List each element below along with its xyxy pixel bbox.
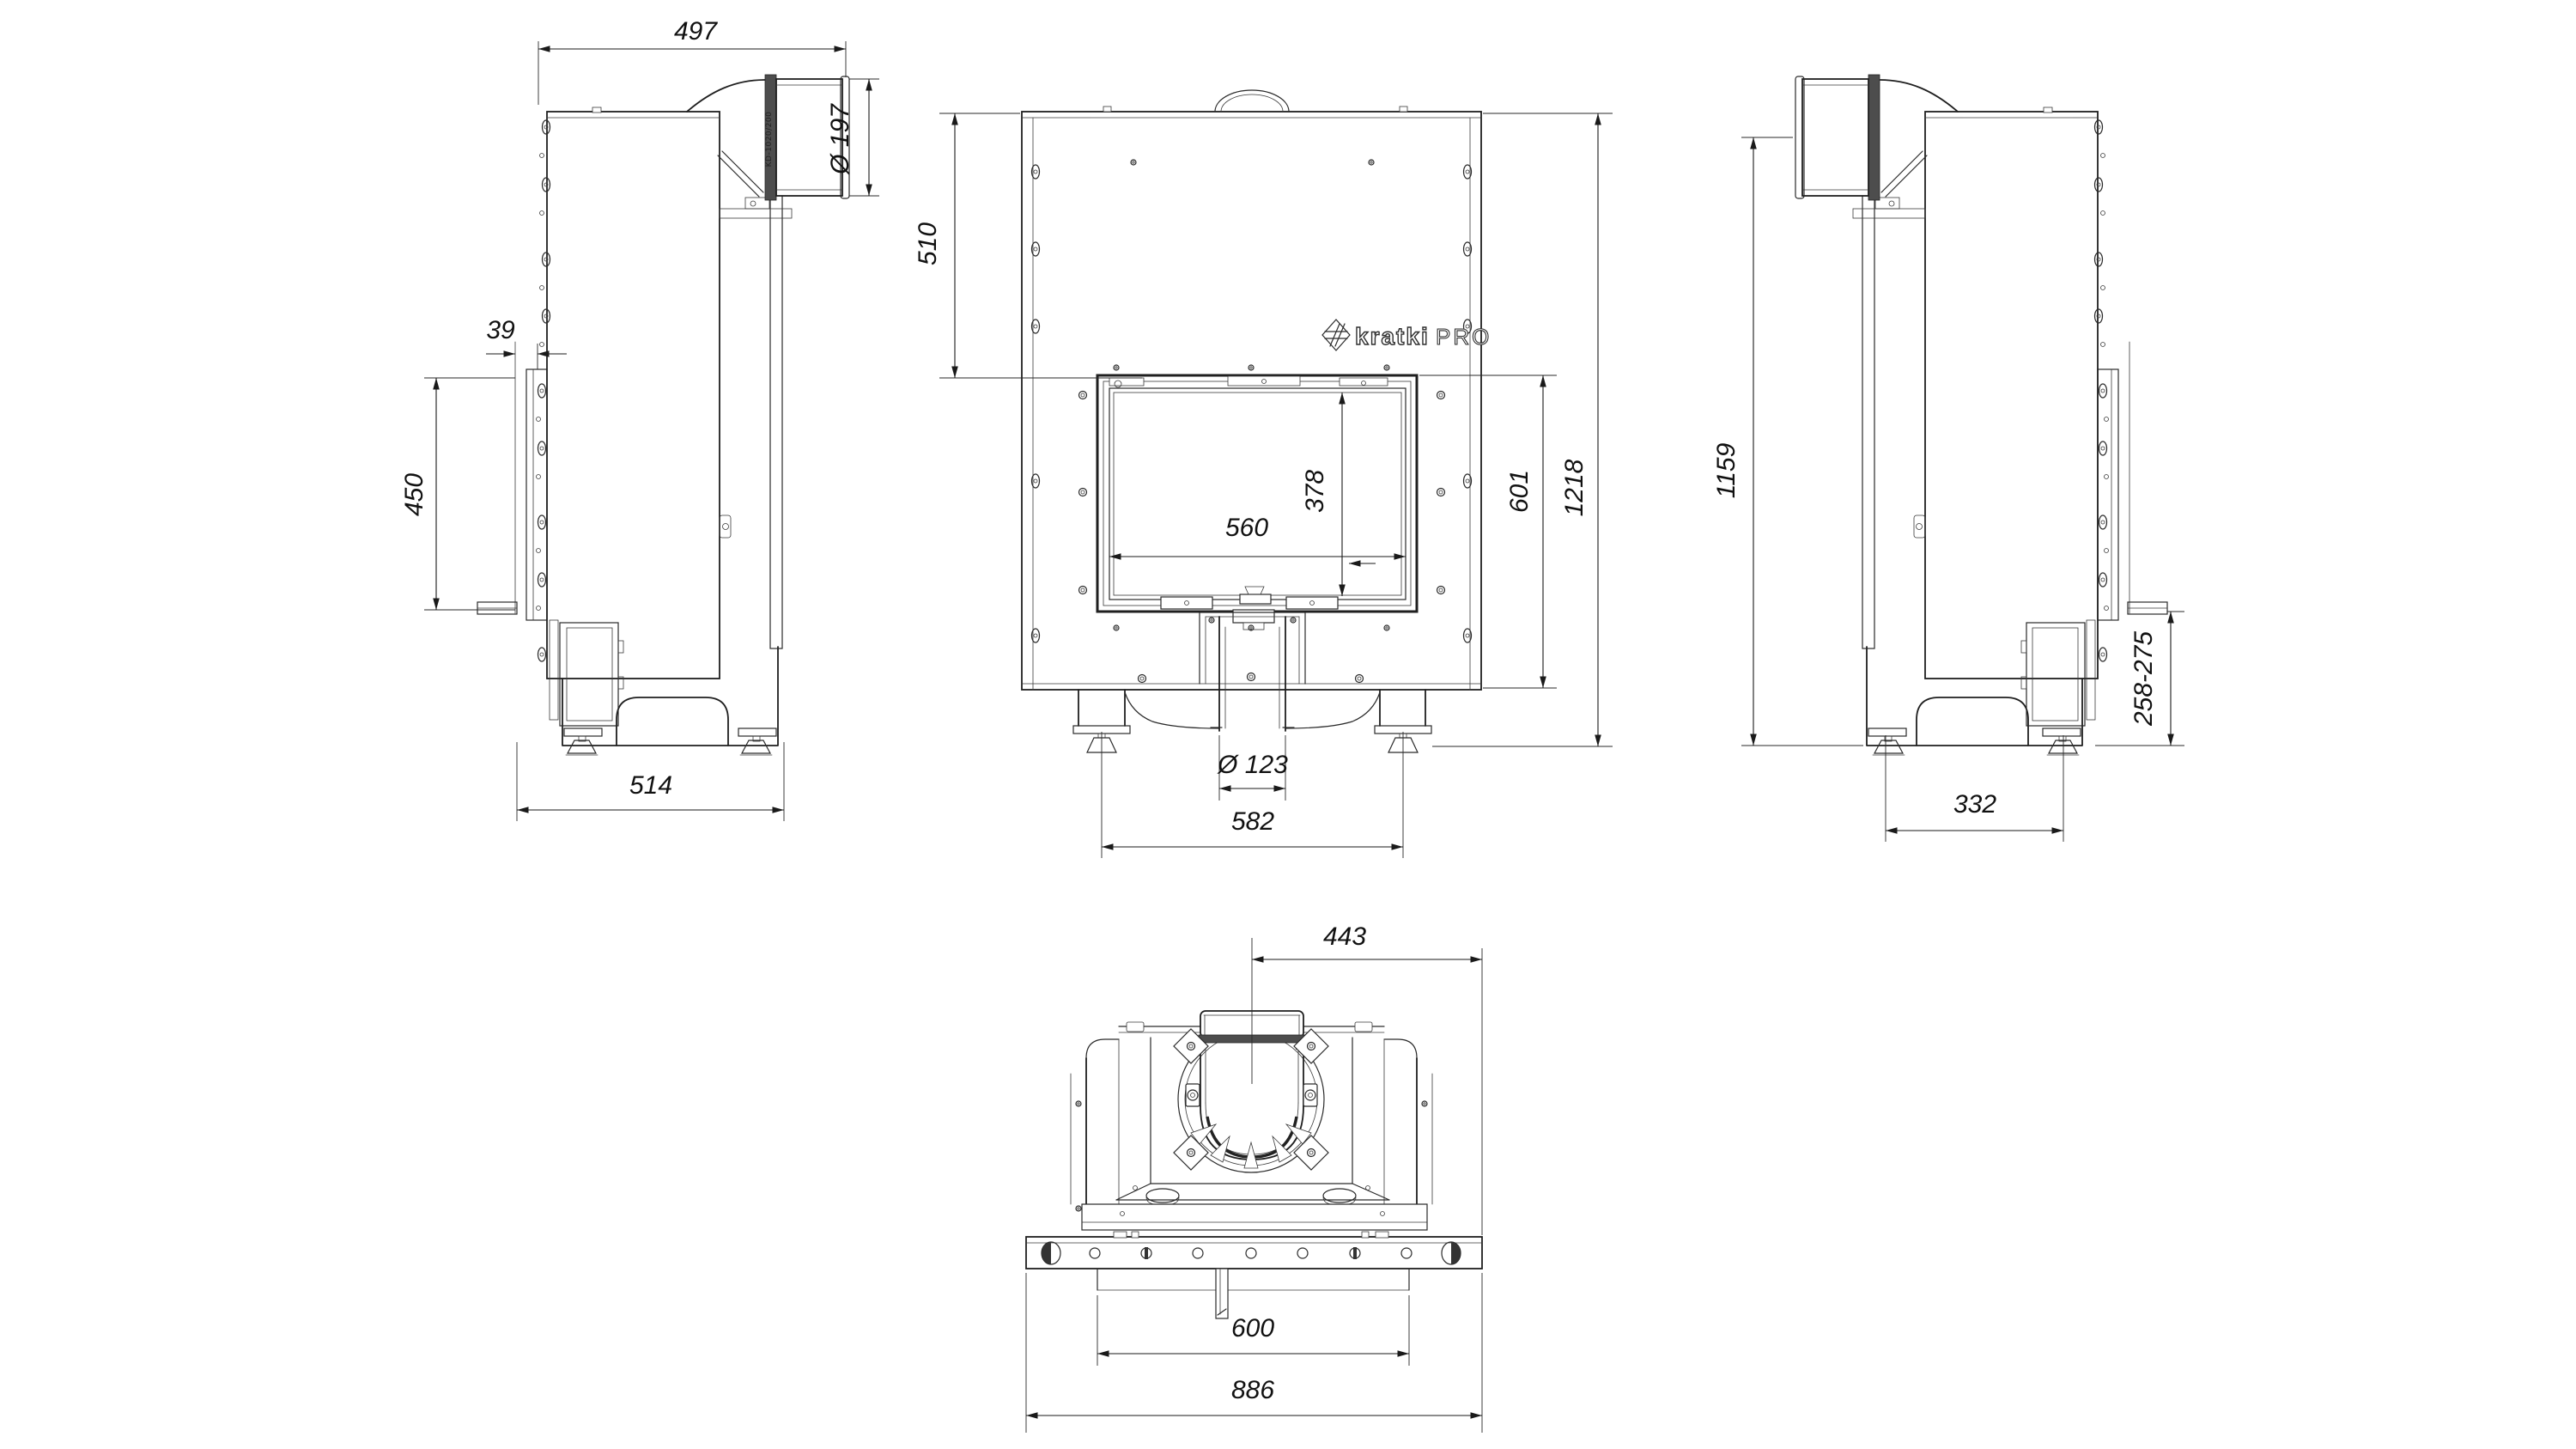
- brand-suffix: PRO: [1436, 324, 1492, 350]
- dim-base-clearance: 258-275: [2129, 631, 2158, 727]
- front-view: kratki PRO: [1022, 90, 1492, 752]
- pipe-part-label: KD-1020/200: [765, 112, 774, 167]
- top-view-dimensions: 443 600 886: [1026, 922, 1482, 1433]
- dim-glass-height: 378: [1301, 470, 1329, 513]
- dim-frame-height: 450: [400, 473, 428, 516]
- dim-flue-axis-height: 1159: [1712, 442, 1741, 498]
- dim-inner-width: 600: [1231, 1314, 1274, 1342]
- dim-total-height: 1218: [1560, 459, 1589, 516]
- top-view: [1026, 1011, 1482, 1318]
- fireplace-dimension-drawing: KD-1020/200 497 Ø 197 39 450 514: [0, 0, 2576, 1449]
- right-side-view-dimensions: 1159 258-275 332: [1712, 137, 2184, 842]
- dim-feet-spacing-side: 332: [1953, 790, 1996, 819]
- dim-glass-width: 560: [1225, 514, 1268, 542]
- dim-top-width: 497: [674, 17, 718, 46]
- left-side-view: KD-1020/200: [477, 75, 849, 755]
- dim-total-width: 886: [1231, 1376, 1274, 1404]
- dim-air-inlet-diameter: Ø 123: [1217, 751, 1288, 779]
- technical-drawing-sheet: KD-1020/200 497 Ø 197 39 450 514: [0, 0, 2576, 1449]
- dim-flue-center-to-edge: 443: [1323, 922, 1366, 951]
- dim-front-offset: 39: [486, 316, 515, 344]
- dim-base-depth: 514: [629, 771, 672, 800]
- dim-feet-spacing-front: 582: [1231, 807, 1274, 836]
- dim-top-to-glass: 510: [914, 222, 942, 265]
- brand-name: kratki: [1355, 323, 1430, 350]
- dim-door-height: 601: [1505, 470, 1534, 513]
- dim-flue-diameter: Ø 197: [826, 103, 854, 175]
- right-side-view: [1795, 75, 2167, 755]
